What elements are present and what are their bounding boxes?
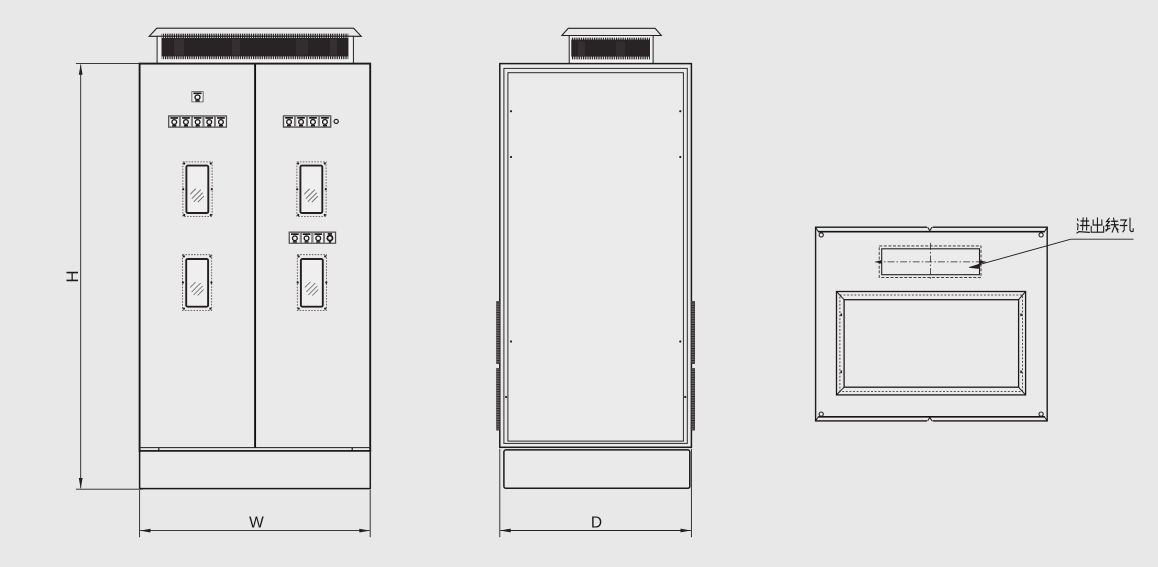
svg-text:H: H bbox=[63, 270, 82, 282]
svg-text:D: D bbox=[591, 515, 602, 532]
svg-text:W: W bbox=[249, 515, 264, 532]
